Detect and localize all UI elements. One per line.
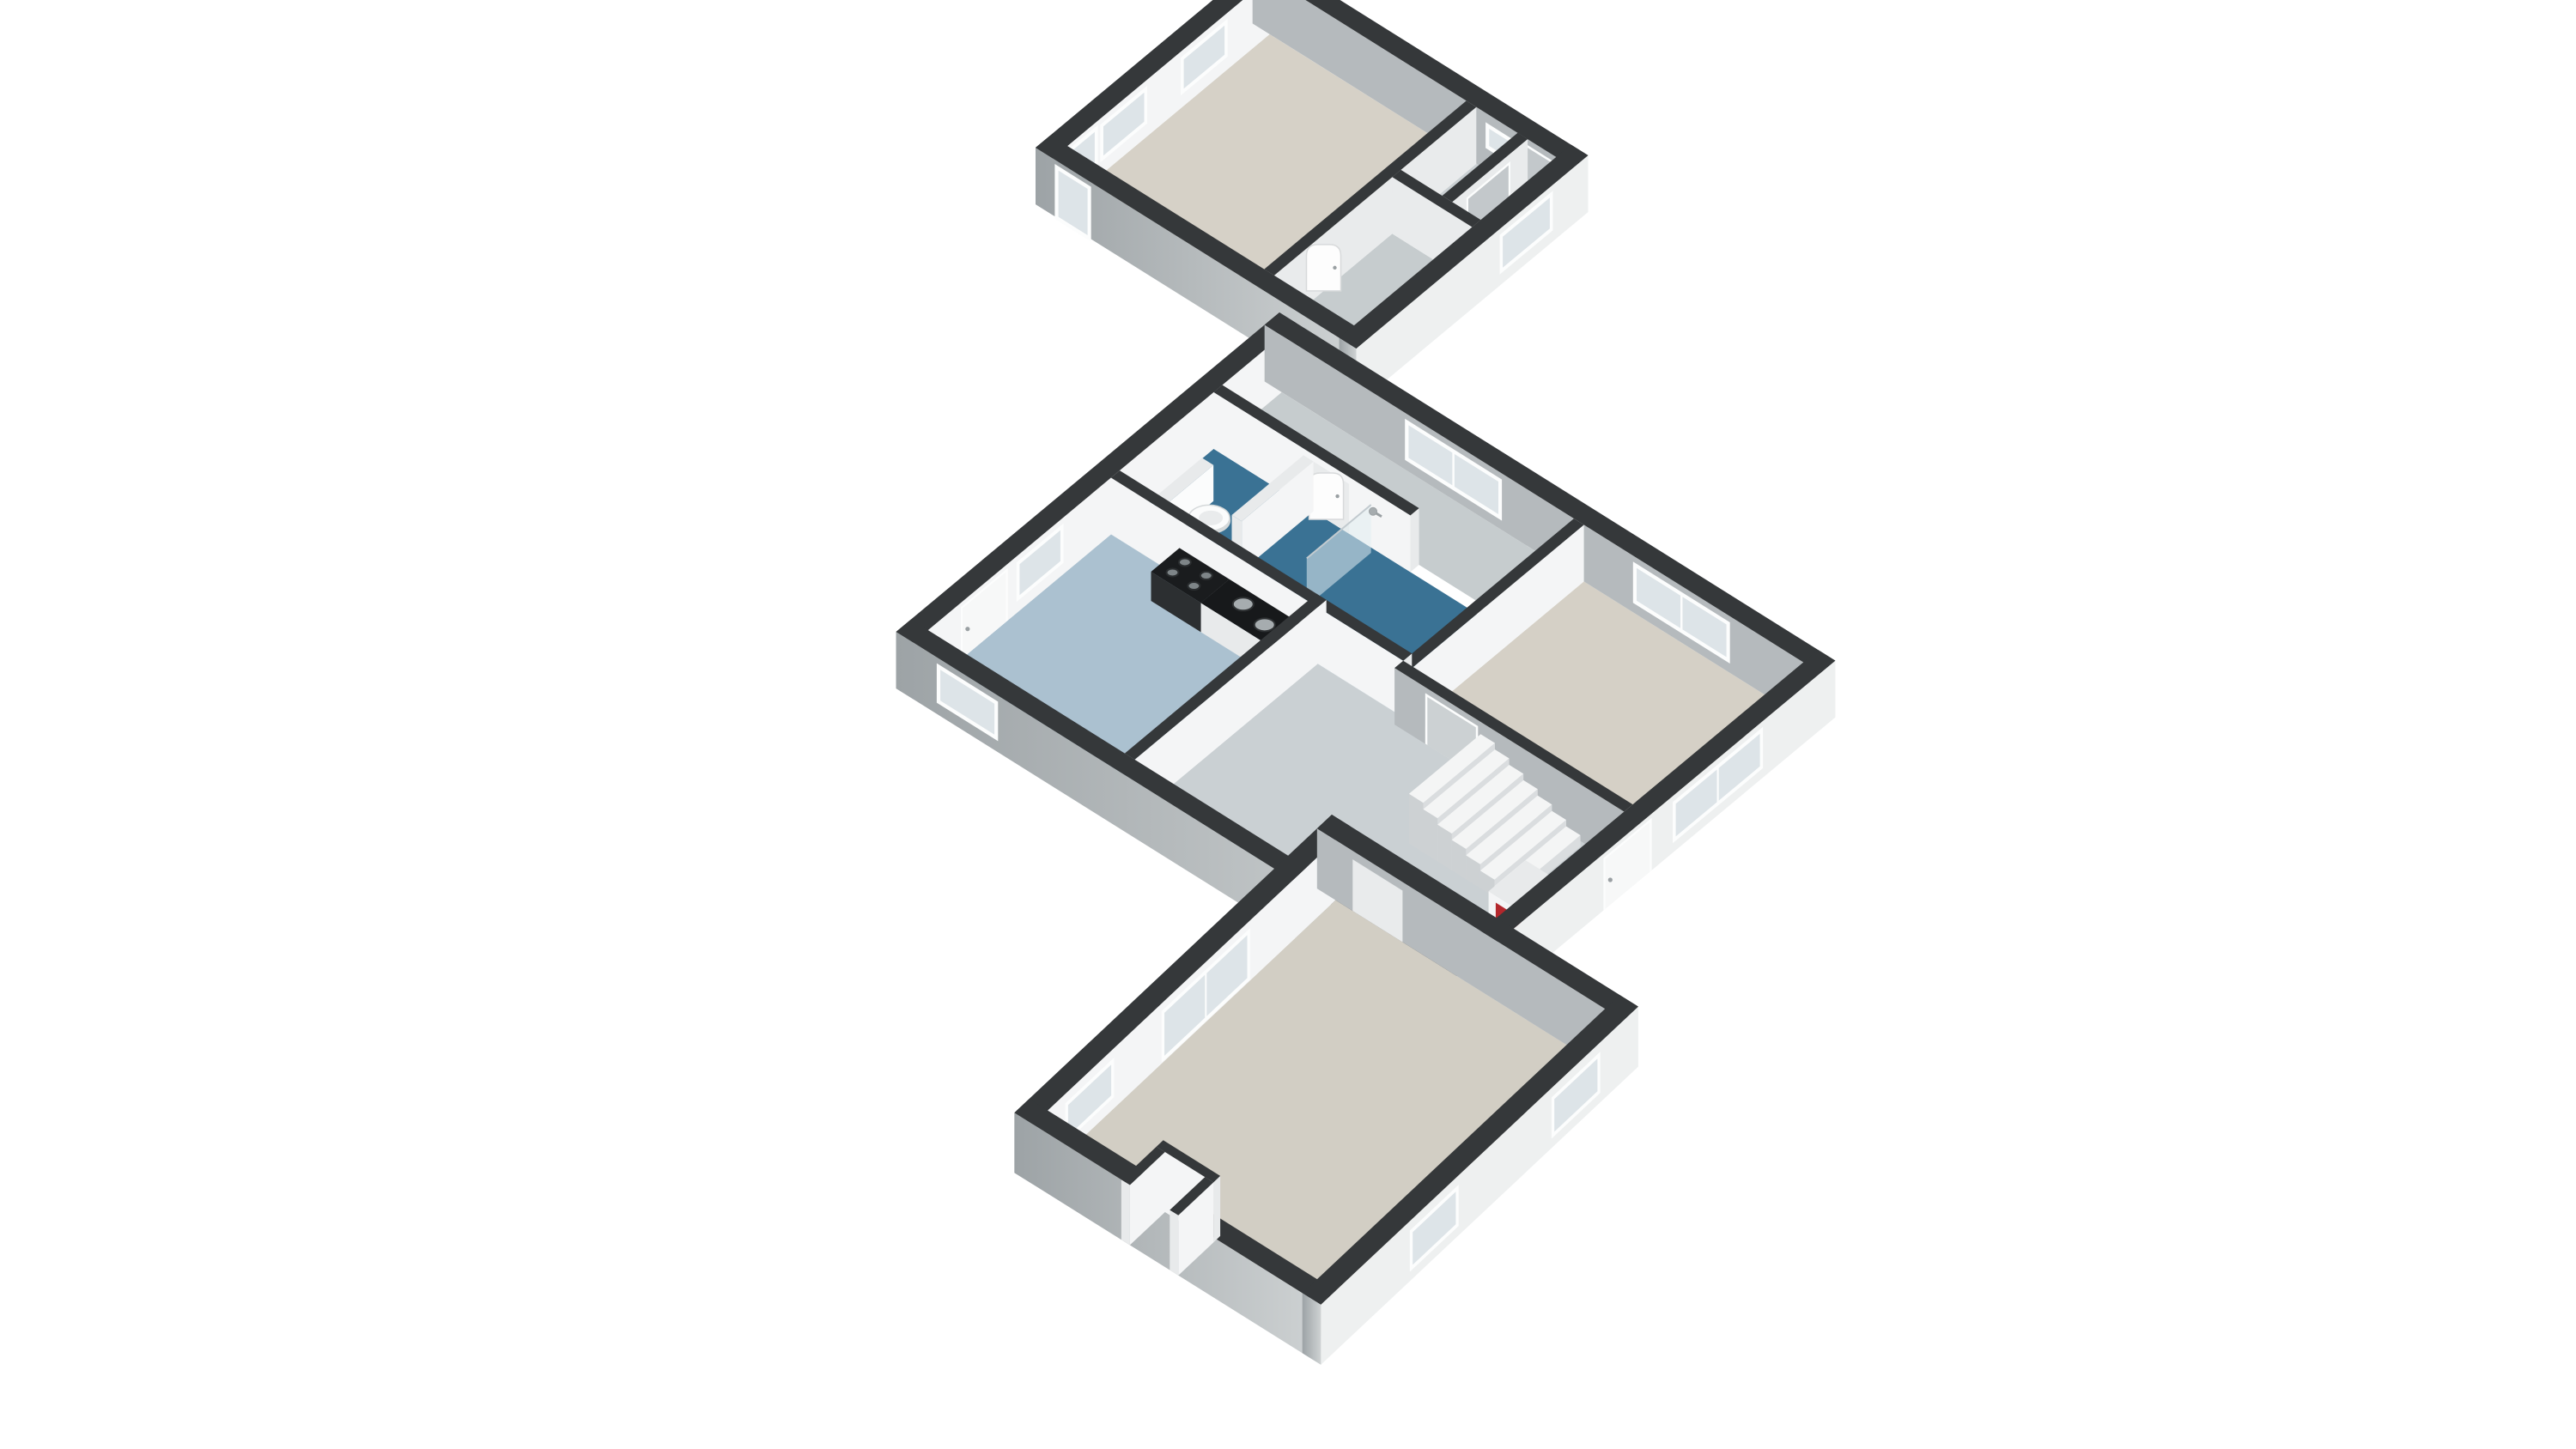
window-mullion — [1205, 972, 1206, 1020]
stove-burners — [1188, 582, 1200, 590]
floorplan-3d-render — [0, 0, 2576, 1449]
stair-step-face-sw — [1424, 809, 1438, 862]
stove-burners — [1167, 568, 1179, 576]
arch-door-handle — [1335, 494, 1339, 498]
stair-step-face-sw — [1409, 794, 1424, 852]
stove-burners — [1200, 572, 1212, 579]
chimney-side-west-face-sw — [1121, 1179, 1130, 1245]
floorplan-viewport — [0, 0, 2576, 1449]
window-mullion — [1452, 451, 1455, 488]
scene-root — [896, 0, 1836, 1365]
chimney-back-wall-face-se — [1213, 1176, 1220, 1243]
chimney-side-east-face-sw — [1170, 1210, 1178, 1276]
arch-door-handle — [1333, 266, 1336, 270]
sink-bowls — [1255, 618, 1275, 631]
shower-head-icon — [1370, 507, 1377, 515]
wall-se-face-sw — [1303, 1293, 1321, 1365]
door-handle — [1608, 877, 1613, 882]
door-handle — [965, 627, 969, 631]
window-mullion — [1717, 767, 1719, 804]
window-mullion — [1680, 594, 1683, 632]
stove-burners — [1179, 558, 1191, 566]
wall-landing-bath-face-se — [1411, 508, 1419, 572]
sink-bowls — [1233, 597, 1254, 610]
